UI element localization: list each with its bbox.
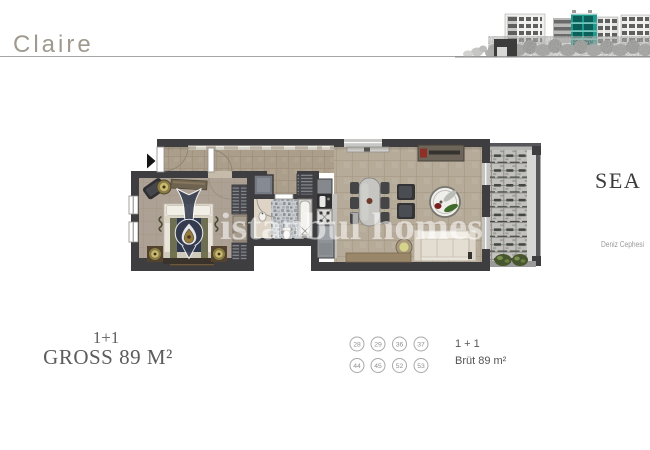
svg-text:52: 52	[396, 363, 404, 370]
svg-text:29: 29	[374, 342, 382, 349]
svg-text:1 + 1: 1 + 1	[455, 338, 480, 350]
svg-text:37: 37	[417, 342, 425, 349]
svg-text:GROSS 89 M²: GROSS 89 M²	[43, 345, 173, 369]
svg-text:53: 53	[417, 363, 425, 370]
svg-text:Deniz Cephesi: Deniz Cephesi	[601, 240, 644, 249]
svg-text:45: 45	[374, 363, 382, 370]
svg-text:28: 28	[353, 342, 361, 349]
svg-text:SEA: SEA	[595, 168, 641, 193]
svg-text:36: 36	[396, 342, 404, 349]
svg-text:Brüt 89 m²: Brüt 89 m²	[455, 355, 507, 367]
svg-text:istanbul homes: istanbul homes	[220, 206, 483, 248]
svg-text:44: 44	[353, 363, 361, 370]
